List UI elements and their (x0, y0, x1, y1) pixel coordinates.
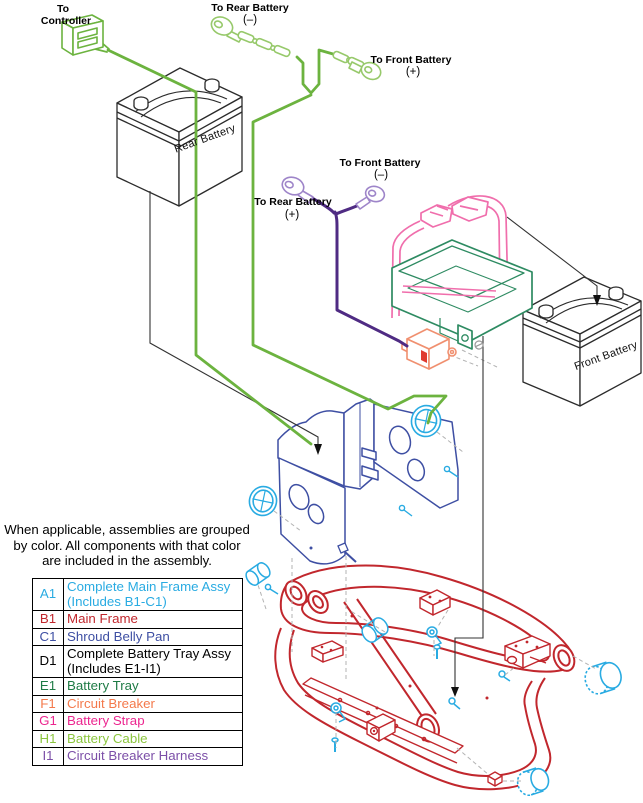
shroud-cap-left (247, 484, 279, 518)
part-code: G1 (33, 713, 64, 731)
note-line-2: by color. All components with that color (0, 538, 254, 554)
label-to-front-battery-neg-1: To Front Battery (340, 157, 421, 169)
part-code: C1 (33, 628, 64, 646)
part-label: Main Frame (67, 612, 239, 627)
note-line-1: When applicable, assemblies are grouped (0, 522, 254, 538)
label-to-front-battery-pos-2: (+) (406, 66, 420, 78)
part-code: B1 (33, 611, 64, 629)
part-code: H1 (33, 730, 64, 748)
label-to-front-battery-pos-1: To Front Battery (371, 54, 452, 66)
part-code: A1 (33, 579, 64, 611)
part-label: Complete Main Frame Assy (67, 580, 239, 595)
label-to-rear-battery-pos-1: To Rear Battery (254, 196, 331, 208)
label-to-controller-1: To (57, 3, 69, 15)
part-code: F1 (33, 695, 64, 713)
legend-row-e1: E1 Battery Tray (33, 678, 243, 696)
label-to-controller-2: Controller (41, 15, 91, 27)
legend-row-a1: A1 Complete Main Frame Assy(Includes B1-… (33, 579, 243, 611)
color-grouping-note: When applicable, assemblies are grouped … (0, 522, 254, 569)
note-line-3: are included in the assembly. (0, 553, 254, 569)
parts-diagram-page: To Controller To Rear Battery (–) To Fro… (0, 0, 643, 803)
part-code: D1 (33, 646, 64, 678)
part-label-2: (Includes B1-C1) (67, 595, 239, 610)
part-label-2: (Includes E1-I1) (67, 662, 239, 677)
legend-row-c1: C1 Shroud Belly Pan (33, 628, 243, 646)
legend-row-b1: B1 Main Frame (33, 611, 243, 629)
part-code: I1 (33, 748, 64, 766)
part-label: Circuit Breaker Harness (67, 749, 239, 764)
label-to-rear-battery-pos-2: (+) (285, 209, 299, 221)
circuit-breaker (402, 329, 456, 369)
label-to-rear-battery-neg-2: (–) (243, 14, 257, 26)
part-label: Battery Strap (67, 714, 239, 729)
legend-row-d1: D1 Complete Battery Tray Assy(Includes E… (33, 646, 243, 678)
legend-row-g1: G1 Battery Strap (33, 713, 243, 731)
legend-row-h1: H1 Battery Cable (33, 730, 243, 748)
parts-legend-table: A1 Complete Main Frame Assy(Includes B1-… (32, 578, 243, 766)
legend-row-f1: F1 Circuit Breaker (33, 695, 243, 713)
part-label: Shroud Belly Pan (67, 630, 239, 645)
part-label: Battery Tray (67, 679, 239, 694)
part-code: E1 (33, 678, 64, 696)
legend-row-i1: I1 Circuit Breaker Harness (33, 748, 243, 766)
cable-ring-terminals (208, 14, 383, 83)
part-label: Complete Battery Tray Assy (67, 647, 239, 662)
part-label: Circuit Breaker (67, 697, 239, 712)
main-frame (275, 566, 578, 790)
front-battery (523, 277, 641, 406)
part-label: Battery Cable (67, 732, 239, 747)
label-to-rear-battery-neg-1: To Rear Battery (211, 2, 288, 14)
label-to-front-battery-neg-2: (–) (374, 169, 388, 181)
